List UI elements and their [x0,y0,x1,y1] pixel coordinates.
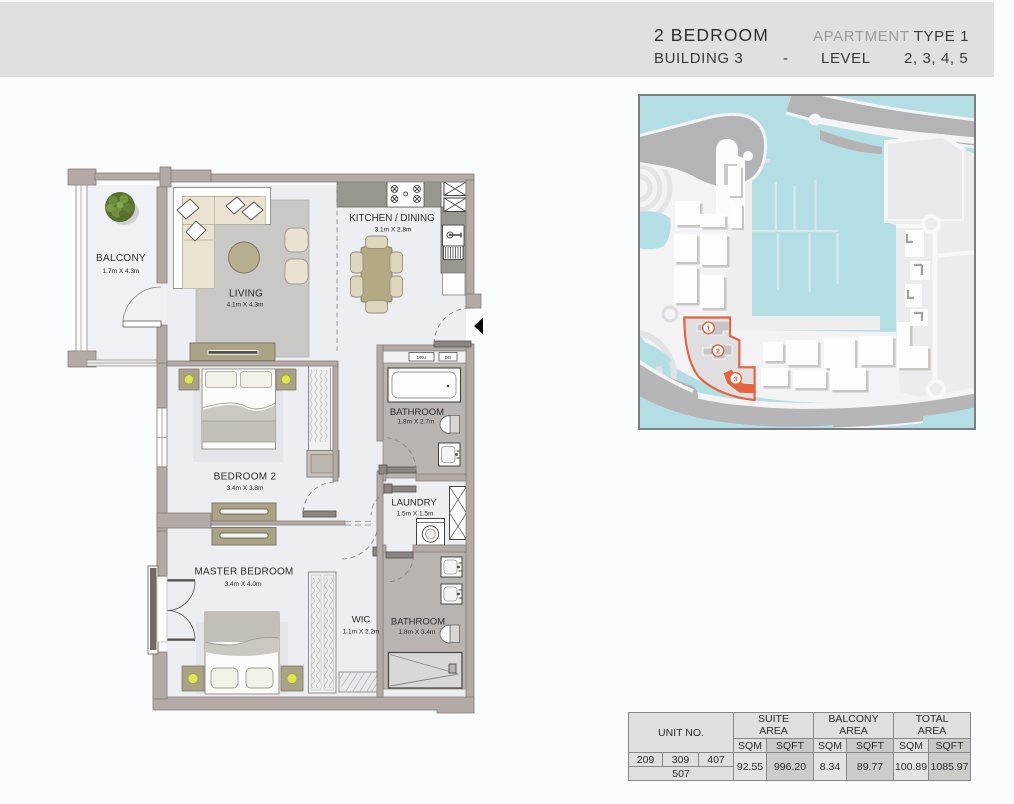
svg-text:1.7m X 4.3m: 1.7m X 4.3m [103,268,140,275]
svg-text:LIVING: LIVING [229,289,263,300]
svg-text:MASTER BEDROOM: MASTER BEDROOM [195,567,294,578]
svg-text:DB: DB [445,355,451,360]
svg-text:4.1m X 4.3m: 4.1m X 4.3m [227,302,264,309]
svg-text:BATHROOM: BATHROOM [390,407,444,418]
svg-text:BALCONY: BALCONY [96,253,146,264]
svg-text:LAUNDRY: LAUNDRY [391,498,437,509]
svg-text:1.1m X 2.2m: 1.1m X 2.2m [343,629,380,636]
svg-text:DRU: DRU [417,355,427,360]
svg-text:3.4m X 4.0m: 3.4m X 4.0m [225,581,262,588]
svg-text:WIC: WIC [352,615,371,626]
svg-text:3.1m X 2.8m: 3.1m X 2.8m [375,227,412,234]
svg-text:BATHROOM: BATHROOM [391,617,445,628]
svg-text:3: 3 [734,374,738,383]
svg-text:BEDROOM 2: BEDROOM 2 [214,472,277,483]
svg-text:3.4m X 3.8m: 3.4m X 3.8m [227,485,264,492]
svg-text:2: 2 [716,347,720,356]
svg-text:1: 1 [706,324,710,333]
svg-text:1.8m X 2.7m: 1.8m X 2.7m [398,419,435,426]
svg-text:1.8m X 3.4m: 1.8m X 3.4m [399,629,436,636]
svg-text:KITCHEN / DINING: KITCHEN / DINING [349,213,434,224]
svg-text:1.5m X 1.5m: 1.5m X 1.5m [397,511,434,518]
